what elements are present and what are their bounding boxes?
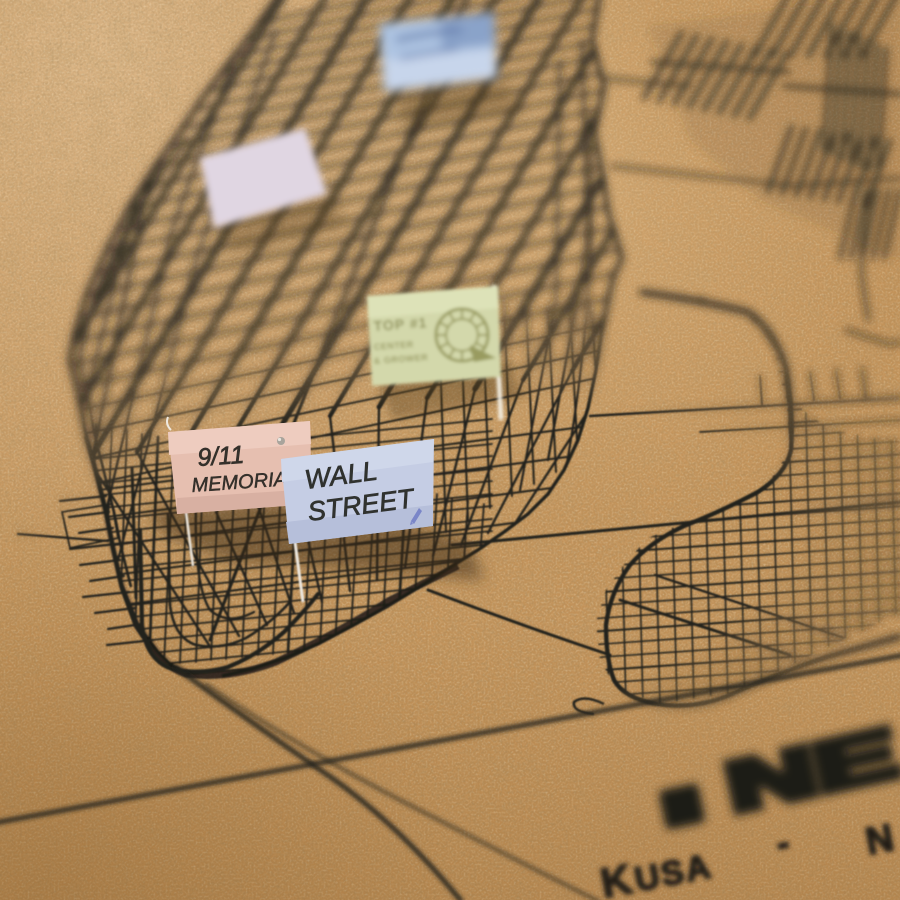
svg-text:9/11: 9/11 — [196, 441, 245, 472]
